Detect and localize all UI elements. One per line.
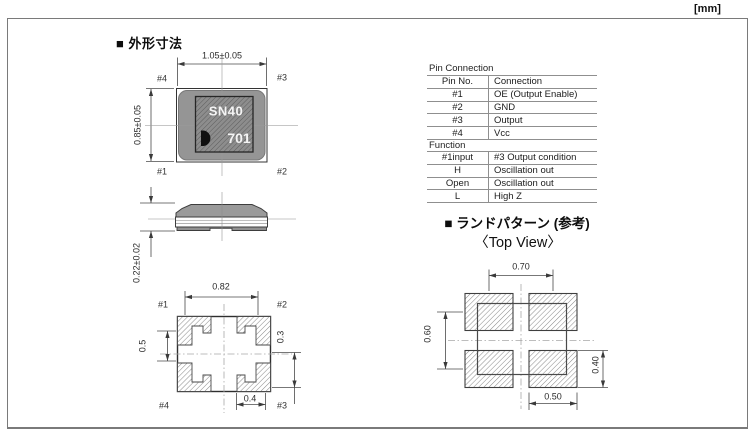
cell-output: Oscillation out (489, 178, 597, 190)
bottom-view-drawing (130, 275, 310, 420)
side-ceramic-band (176, 217, 268, 227)
table-row: #4 Vcc (427, 127, 597, 140)
bottom-view-pin1: #1 (158, 301, 168, 310)
top-view-pin1: #1 (157, 168, 167, 177)
dim-top-height: 0.85±0.05 (134, 105, 143, 145)
dim-top-width: 1.05±0.05 (202, 52, 242, 61)
dim-land-pitch-x: 0.70 (512, 263, 530, 272)
top-view-pin2: #2 (277, 168, 287, 177)
header-pin-no: Pin No. (427, 76, 489, 88)
marking-lot: 701 (227, 130, 250, 146)
top-view-pin4: #4 (157, 75, 167, 84)
cell-connection: Output (489, 114, 597, 126)
side-view-drawing (130, 180, 305, 262)
dim-land-pitch-y: 0.60 (424, 325, 433, 343)
cell-input: Open (427, 178, 489, 190)
header-input: #1input (427, 152, 489, 164)
bottom-view-pin2: #2 (277, 301, 287, 310)
header-output-condition: #3 Output condition (489, 152, 597, 164)
table-row: Open Oscillation out (427, 178, 597, 191)
table-header-row: #1input #3 Output condition (427, 152, 597, 165)
table-header-row: Pin No. Connection (427, 76, 597, 89)
marking-model: SN40 (209, 104, 244, 119)
land-pad-4 (529, 351, 577, 388)
land-pattern-drawing (410, 255, 620, 420)
cell-pin: #2 (427, 102, 489, 114)
cell-output: High Z (489, 190, 597, 202)
cell-input: L (427, 190, 489, 202)
pin-connection-table: Pin No. Connection #1 OE (Output Enable)… (427, 75, 597, 140)
table-row: #1 OE (Output Enable) (427, 89, 597, 102)
land-pattern-subtitle: 〈Top View〉 (474, 231, 562, 252)
cell-input: H (427, 165, 489, 177)
dim-land-pad-height: 0.40 (592, 356, 601, 374)
table-row: #2 GND (427, 102, 597, 115)
header-connection: Connection (489, 76, 597, 88)
table-row: L High Z (427, 190, 597, 203)
function-table: #1input #3 Output condition H Oscillatio… (427, 151, 597, 203)
dim-bottom-pad-width: 0.4 (244, 395, 257, 404)
cell-connection: Vcc (489, 127, 597, 139)
side-lid (176, 205, 267, 218)
cell-connection: GND (489, 102, 597, 114)
dim-land-pad-width: 0.50 (544, 393, 562, 402)
pin-connection-label: Pin Connection (429, 64, 493, 74)
function-label: Function (429, 141, 465, 151)
frame-border (7, 18, 748, 429)
cell-connection: OE (Output Enable) (489, 89, 597, 101)
dim-bottom-left: 0.5 (139, 340, 148, 353)
cell-pin: #3 (427, 114, 489, 126)
dim-bottom-inner-width: 0.82 (212, 283, 230, 292)
unit-label: [mm] (694, 3, 721, 15)
bottom-view-pin4: #4 (159, 402, 169, 411)
land-pad-2 (529, 294, 577, 331)
cell-pin: #1 (427, 89, 489, 101)
cell-output: Oscillation out (489, 165, 597, 177)
cell-pin: #4 (427, 127, 489, 139)
land-pattern-title: ■ ランドパターン (参考) (444, 212, 589, 232)
table-row: H Oscillation out (427, 165, 597, 178)
datasheet-page: [mm] ■ 外形寸法 1.05±0.05 0.85±0.05 (0, 0, 751, 440)
top-view-pin3: #3 (277, 74, 287, 83)
dim-bottom-right: 0.3 (277, 331, 286, 344)
land-pad-3 (465, 351, 513, 388)
land-pad-1 (465, 294, 513, 331)
bottom-view-pin3: #3 (277, 402, 287, 411)
table-row: #3 Output (427, 114, 597, 127)
